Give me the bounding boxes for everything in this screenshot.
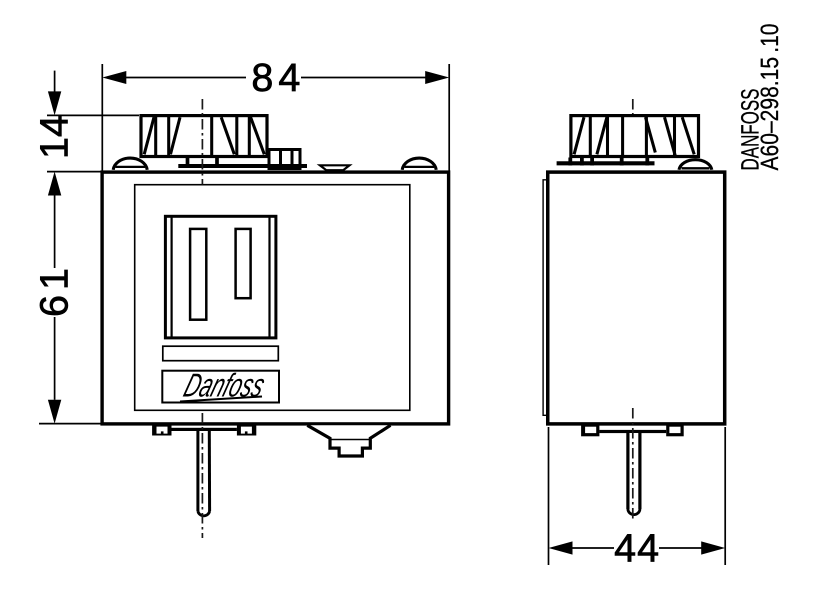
svg-text:14: 14 [33,115,77,159]
svg-text:44: 44 [614,527,659,571]
